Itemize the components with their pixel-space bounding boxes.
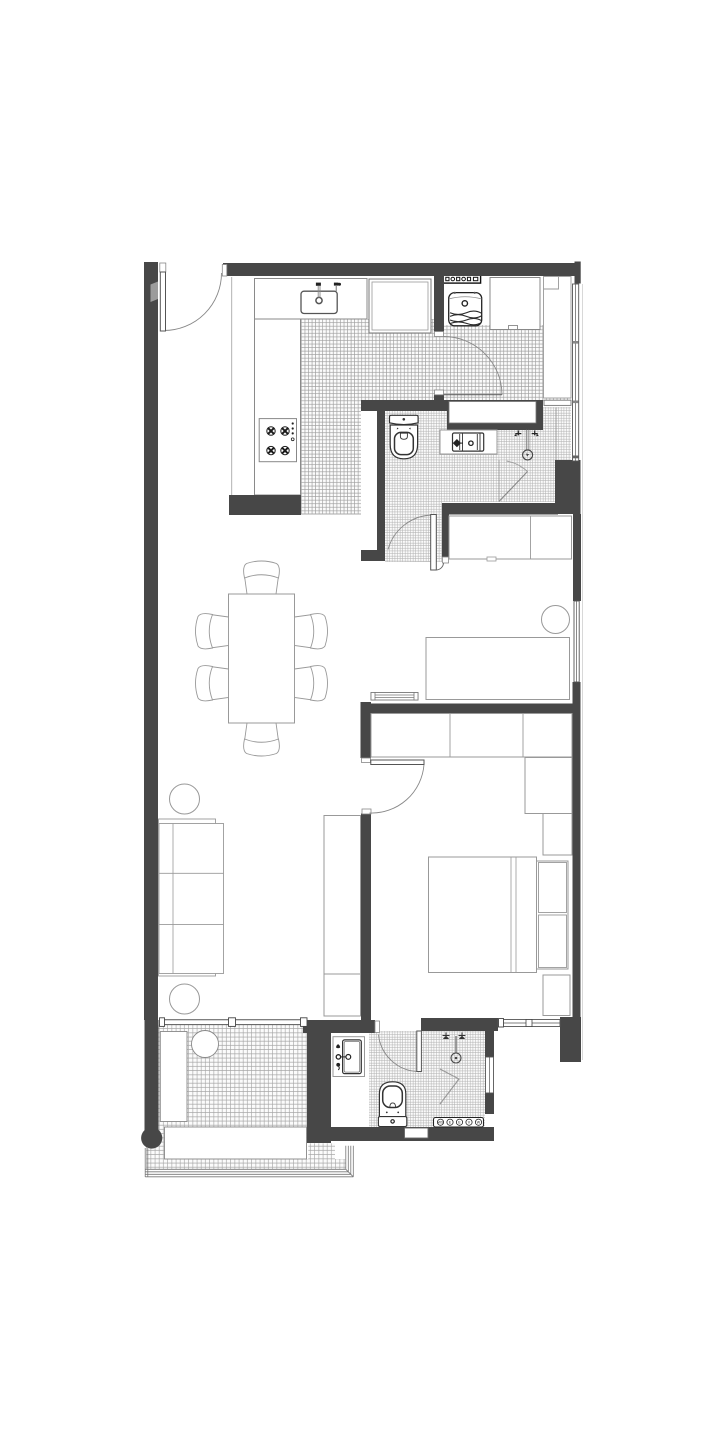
svg-text:W: W <box>477 1121 481 1125</box>
svg-text:WS: WS <box>438 1121 444 1125</box>
